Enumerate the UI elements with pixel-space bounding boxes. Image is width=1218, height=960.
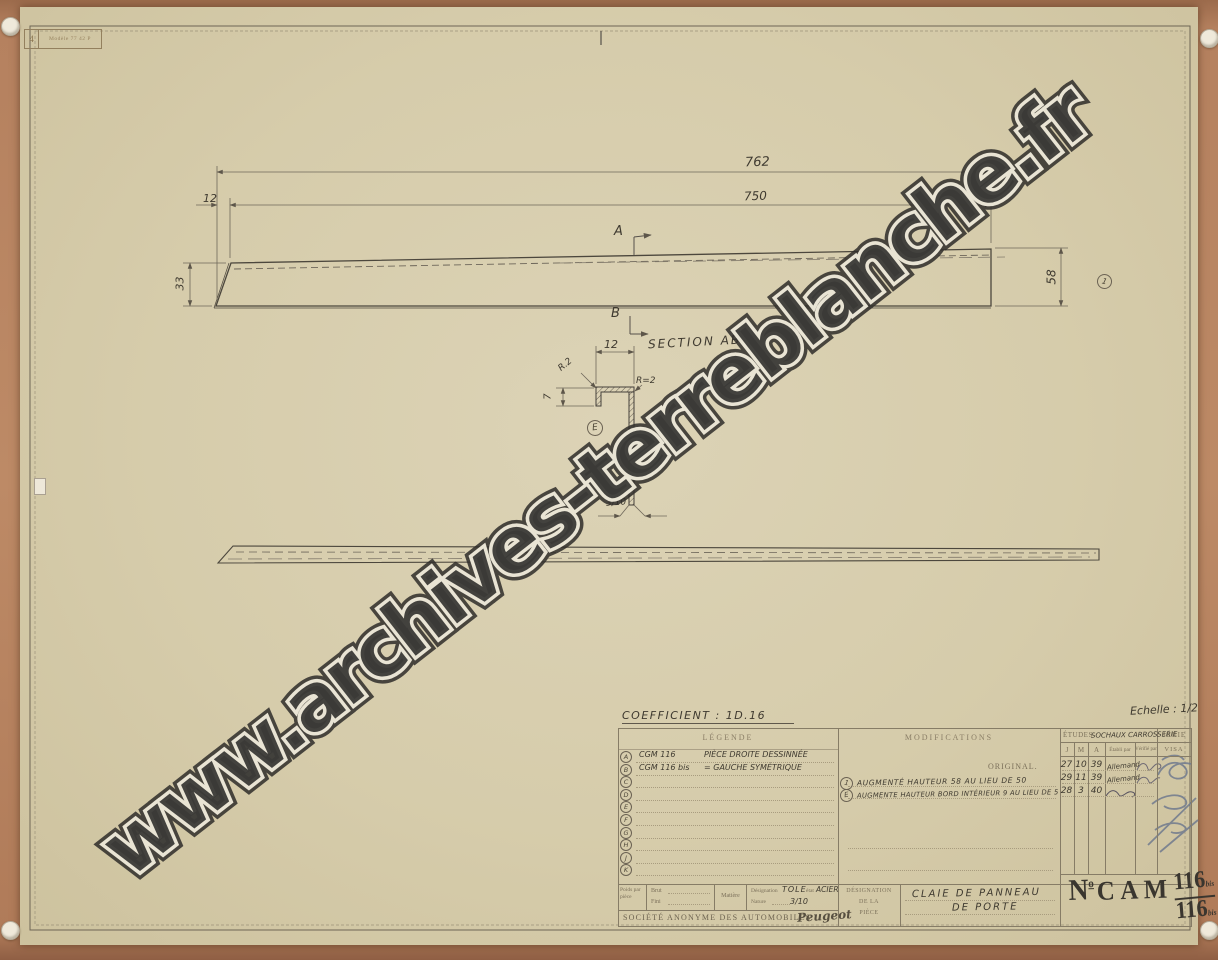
col-visa: VISA [1157, 746, 1191, 753]
stamp-deg: o [1088, 873, 1094, 893]
legend-row: B CGM 116 bis = GAUCHE SYMÉTRIQUE [620, 764, 836, 776]
mounting-board: 4 Modèle 77 42 P 762 750 12 A 33 58 1 B … [0, 0, 1218, 960]
drawing-linework [0, 0, 1218, 960]
modifications-header: MODIFICATIONS [838, 733, 1060, 742]
etudes-label: ÉTUDES [1063, 731, 1093, 739]
etat-value: ACIER [816, 885, 839, 894]
grommet-top-left [1, 17, 20, 36]
date-j-0: 27 [1059, 760, 1074, 770]
legend-row: C [620, 776, 836, 788]
date-m-2: 3 [1074, 786, 1088, 796]
date-j-1: 29 [1059, 773, 1074, 783]
coefficient-note: COEFFICIENT : 1D.16 [622, 709, 794, 724]
serie-label: SÉRIE [1157, 731, 1191, 739]
col-a: A [1088, 746, 1105, 754]
legend-ref: CGM 116 [639, 750, 676, 759]
legend-text: = GAUCHE SYMÉTRIQUE [704, 763, 802, 772]
legend-row: D [620, 789, 836, 801]
poids-label: Poids par pièce [620, 887, 645, 900]
etat-label: état [806, 888, 814, 894]
legend-ref: CGM 116 bis [639, 763, 690, 772]
legend-letter: H [620, 839, 632, 851]
col-j: J [1060, 746, 1074, 754]
stamp-n: N [1068, 873, 1089, 908]
legend-letter: E [620, 801, 632, 813]
corner-stamp-number: 4 [25, 30, 39, 48]
matiere-label: Matière [715, 893, 746, 899]
date-m-0: 10 [1074, 760, 1088, 770]
fini-label: Fini [651, 899, 661, 905]
grommet-top-right [1200, 29, 1218, 48]
dim-12-top: 12 [203, 192, 217, 205]
corner-stamp-text: Modèle 77 42 P [39, 30, 101, 48]
piece-name-2: DE PORTE [952, 901, 1019, 913]
original-label: ORIGINAL. [988, 762, 1038, 771]
legend-row: E [620, 801, 836, 813]
legend-row: K [620, 864, 836, 876]
legend-letter: K [620, 864, 632, 876]
dim-750: 750 [744, 189, 767, 204]
dim-3-10: 3/10 [606, 497, 627, 508]
section-marker-b: B [611, 306, 620, 321]
societe-name: SOCIÉTÉ ANONYME DES AUTOMOBILES [623, 913, 811, 922]
date-a-2: 40 [1088, 786, 1105, 796]
stamp-cam: CAM [1096, 870, 1173, 909]
stamp-num-bottom: 116 [1175, 896, 1209, 925]
designation-label: Désignation [751, 888, 778, 894]
piece-name-1: CLAIE DE PANNEAU [912, 887, 1041, 900]
stamp-num-top: 116 [1172, 867, 1206, 896]
piece-label-1: DÉSIGNATION [840, 888, 898, 894]
legend-header: LÉGENDE [618, 733, 838, 742]
dim-58: 58 [1045, 269, 1059, 284]
legend-row: A CGM 116 PIÈCE DROITE DESSINNÉE [620, 751, 836, 763]
legend-text: PIÈCE DROITE DESSINNÉE [704, 750, 808, 759]
radius-label: R=2 [636, 376, 656, 386]
nature-label: Nature [751, 899, 766, 905]
legend-letter: C [620, 776, 632, 788]
legend-letter: D [620, 789, 632, 801]
legend-row: J [620, 852, 836, 864]
date-a-1: 39 [1088, 773, 1105, 783]
dim-33: 33 [174, 277, 187, 291]
legend-row: F [620, 814, 836, 826]
col-m: M [1074, 746, 1088, 754]
dim-762: 762 [745, 155, 770, 171]
date-a-0: 39 [1088, 760, 1105, 770]
legend-letter: G [620, 827, 632, 839]
legend-letter: A [620, 751, 632, 763]
date-j-2: 28 [1059, 786, 1074, 796]
piece-label-2: DE LA [840, 899, 898, 905]
legend-letter: F [620, 814, 632, 826]
section-marker-a: A [614, 224, 623, 239]
col-etabli: Établi par [1105, 747, 1135, 753]
col-verifie: Vérifié par [1135, 747, 1157, 752]
nature-value: 3/10 [790, 897, 808, 906]
legend-row: H [620, 839, 836, 851]
dim-7: 7 [543, 393, 554, 399]
grommet-bottom-right [1200, 921, 1218, 940]
grommet-bottom-left [1, 921, 20, 940]
legend-row: G [620, 827, 836, 839]
dim-12-section: 12 [604, 338, 618, 351]
stamp-num-top-suffix: bis [1205, 879, 1214, 889]
corner-stamp-box: 4 Modèle 77 42 P [24, 29, 102, 49]
designation-value: TOLE [782, 885, 807, 894]
date-m-1: 11 [1074, 773, 1088, 783]
part-number-stamp: No CAM 116bis 116bis [1068, 869, 1216, 930]
edge-tab-left [34, 478, 46, 495]
stamp-num-bottom-suffix: bis [1208, 908, 1217, 918]
piece-label-3: PIÈCE [840, 910, 898, 916]
brut-label: Brut [651, 888, 662, 894]
legend-letter: B [620, 764, 632, 776]
legend-letter: J [620, 852, 632, 864]
